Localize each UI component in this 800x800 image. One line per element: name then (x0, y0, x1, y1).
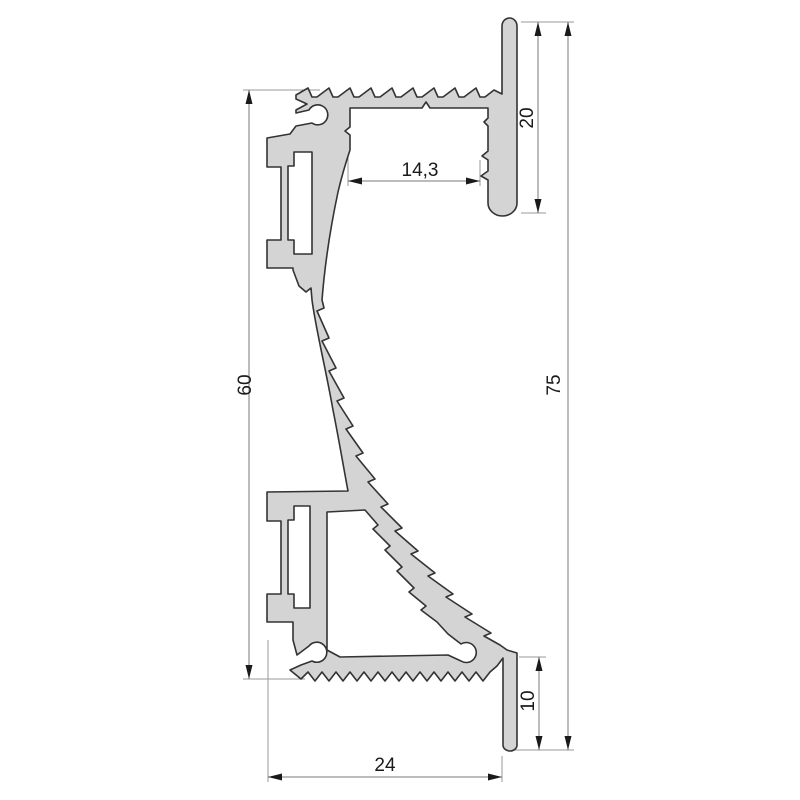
arrow-10-down (536, 736, 543, 750)
arrow-60-up (246, 90, 253, 104)
dimension-base-width-label: 24 (374, 755, 396, 776)
arrow-75-up (565, 22, 572, 36)
arrow-10-up (536, 657, 543, 671)
arrow-60-down (246, 665, 253, 679)
arrow-20-down (535, 199, 542, 213)
arrow-143-right (466, 178, 480, 185)
dimension-channel-width-label: 14,3 (402, 160, 439, 181)
arrow-75-down (565, 736, 572, 750)
profile-outline (267, 18, 517, 751)
dimension-fin-bottom-label: 10 (518, 690, 539, 711)
arrow-24-right (488, 774, 502, 781)
arrow-143-left (348, 178, 362, 185)
dimension-body-height-label: 60 (235, 374, 256, 395)
dimension-overall-height-label: 75 (544, 374, 565, 395)
drawing-canvas: 60 75 20 10 14,3 24 (0, 0, 800, 800)
arrow-24-left (268, 774, 282, 781)
dimension-fin-top-label: 20 (517, 107, 538, 128)
arrow-20-up (535, 22, 542, 36)
technical-drawing: 60 75 20 10 14,3 24 (0, 0, 800, 800)
